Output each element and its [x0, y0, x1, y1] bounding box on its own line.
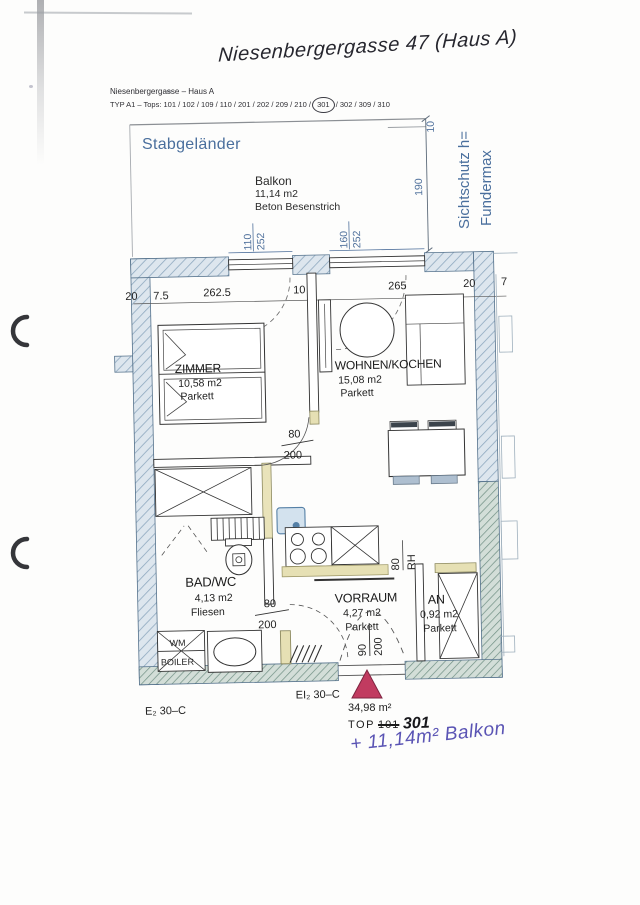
fire-rating-left: E₂ 30–C [145, 705, 186, 718]
door-swing-arc-bad [290, 603, 348, 661]
dim-top-4: 265 [388, 280, 407, 292]
dim-kitchen-note: RH [406, 554, 418, 570]
dim-door-bath-h: 200 [258, 619, 277, 631]
balcony-outline: 190 10 [130, 115, 440, 259]
balcony-left-edge [130, 125, 133, 257]
toilet-bowl [226, 544, 253, 575]
chair [393, 476, 419, 485]
room-vorraum-floor: Parkett [345, 621, 379, 634]
scanned-floorplan-page: Niesenbergergasse 47 (Haus A) Niesenberg… [0, 0, 640, 905]
room-an: AN 0,92 m2 Parkett [419, 563, 479, 659]
dim-line [228, 252, 292, 253]
toilet [225, 538, 252, 575]
room-wohnen-name: WOHNEN/KOCHEN [335, 356, 442, 372]
room-vorraum-area: 4,27 m2 [343, 607, 381, 620]
stove [285, 527, 332, 567]
wall-zimmer-wohnen [307, 273, 319, 412]
threshold-line [338, 664, 405, 665]
room-bad-name: BAD/WC [185, 574, 236, 590]
room-zimmer-floor: Parkett [180, 390, 214, 403]
room-bad-floor: Fliesen [191, 606, 225, 619]
kitchen-counter-front [314, 578, 394, 580]
punch-hole-bottom [13, 539, 27, 567]
wall-left [131, 259, 159, 685]
dim-top-1: 7.5 [153, 290, 169, 302]
room-zimmer-name: ZIMMER [175, 361, 222, 376]
wall-top-a [131, 257, 229, 278]
floorplan-svg: 190 10 [0, 0, 640, 905]
door-bad: 80 200 [255, 596, 348, 664]
dim-entry-h: 200 [373, 637, 385, 656]
wm-label: WM [169, 638, 185, 648]
ceiling-slope-line [188, 525, 209, 554]
kitchen: 80 RH [277, 505, 418, 581]
wall-right-lower [478, 481, 502, 677]
top-label: TOP [348, 719, 375, 731]
fire-rating-right: EI₂ 30–C [296, 689, 340, 702]
wall-right-upper [473, 251, 498, 481]
dim-top-2: 262.5 [203, 287, 231, 300]
dim-top-3: 10 [293, 284, 305, 296]
chair-back [391, 422, 417, 428]
balcony-depth-dim-line [426, 119, 429, 251]
dim-fraction-bar [281, 440, 313, 446]
room-an-name: AN [428, 592, 445, 606]
room-wohnen-floor: Parkett [340, 387, 374, 400]
neighbor-fixture [501, 436, 515, 478]
sofa [405, 294, 465, 385]
kitchen-counter [282, 565, 388, 577]
room-wohnen-kochen: WOHNEN/KOCHEN 15,08 m2 Parkett [318, 294, 467, 486]
dim-top-5: 20 [463, 278, 475, 290]
room-wohnen-area: 15,08 m2 [338, 374, 382, 387]
dim-top-0: 20 [125, 291, 137, 303]
balcony-railing-line [130, 119, 426, 125]
dining-table [388, 429, 465, 477]
dim-fraction-bar [402, 540, 403, 570]
total-area: 34,98 m² [348, 701, 430, 716]
washbasin [207, 630, 262, 672]
dim-balcony-depth: 190 [413, 178, 425, 196]
door-leaf-bad [280, 631, 291, 664]
threshold-line [338, 674, 405, 675]
chair-back [429, 421, 455, 427]
room-zimmer-area: 10,58 m2 [178, 377, 222, 390]
dim-entry-w: 90 [357, 644, 369, 656]
dim-window-right-h: 252 [351, 230, 363, 248]
dim-top-6: 7 [501, 276, 507, 288]
neighbor-fixture [499, 316, 513, 352]
dim-window-right-w: 160 [338, 231, 350, 249]
neighbor-fixture [501, 521, 518, 559]
room-an-floor: Parkett [423, 622, 457, 635]
doormat [290, 645, 322, 663]
wall-top-b [424, 252, 473, 272]
wall-left-pier [115, 356, 133, 372]
dim-kitchen-w: 80 [390, 558, 402, 570]
ceiling-slope-line [161, 526, 185, 555]
room-an-area: 0,92 m2 [420, 608, 458, 621]
plan-group: 190 10 [110, 114, 527, 718]
radiator [211, 517, 264, 540]
radiator-body [211, 517, 264, 540]
dim-window-left-w: 110 [242, 233, 254, 250]
room-bad-wc: BAD/WC 4,13 m2 Fliesen WM BOILER [154, 467, 267, 673]
wall-top-pier [293, 255, 330, 275]
dim-fraction-bar [255, 610, 289, 616]
room-vorraum-name: VORRAUM [335, 590, 398, 605]
dim-door-room-w: 80 [288, 428, 300, 440]
dim-balcony-rail: 10 [425, 121, 437, 133]
dim-door-room-h: 200 [284, 449, 303, 461]
door-jamb-zimmer [310, 411, 319, 424]
room-zimmer: ZIMMER 10,58 m2 Parkett [158, 323, 266, 424]
sink-cabinet [331, 526, 379, 565]
round-table [340, 302, 395, 357]
wall-bad-vorraum [263, 538, 273, 604]
chair [431, 475, 457, 484]
boiler-label: BOILER [161, 657, 195, 668]
room-bad-area: 4,13 m2 [195, 592, 233, 605]
neighbor-line [494, 253, 518, 254]
wall-bottom-b [405, 659, 502, 679]
wm-boiler-box: WM BOILER [157, 630, 205, 671]
washbasin-bowl [214, 637, 257, 666]
an-lintel [435, 563, 476, 573]
balcony-railing-line-inner [388, 127, 426, 128]
dim-window-left-h: 252 [255, 232, 267, 250]
neighbor-fixture [501, 636, 515, 652]
dim-door-bath-w: 80 [264, 598, 276, 610]
entry-triangle [352, 670, 382, 698]
punch-hole-top [13, 317, 27, 345]
